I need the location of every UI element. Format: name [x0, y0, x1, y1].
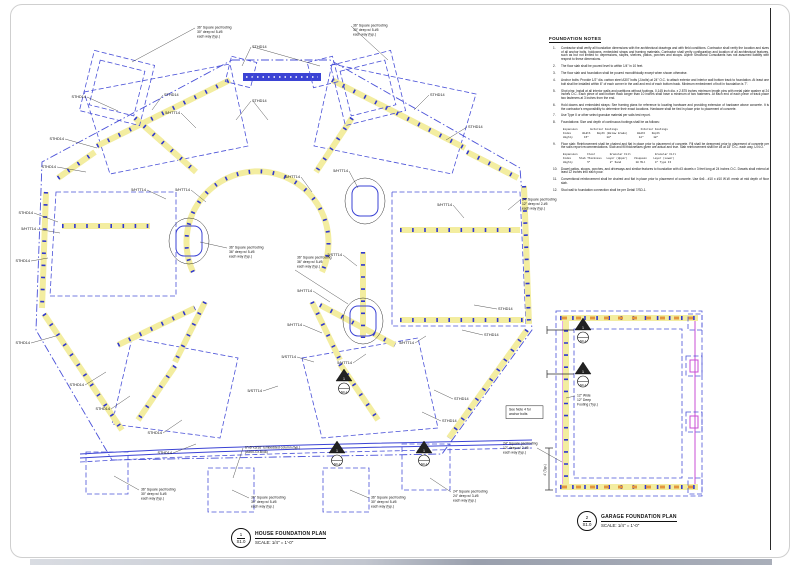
- plan-note-text: 30" deep w/ 5-#5: [197, 30, 223, 34]
- plan-note: 36" Square pad footing30" deep w/ 5-#5ea…: [350, 490, 406, 508]
- plan-title: HOUSE FOUNDATION PLAN: [255, 531, 326, 539]
- plan-note-text: each way (typ.): [371, 504, 394, 508]
- leader-line: [132, 28, 195, 62]
- pad-footing: [89, 60, 145, 116]
- plan-note-text: 24" Square pad footing: [522, 198, 557, 202]
- leader-line: [422, 412, 441, 421]
- pilaster: [686, 412, 702, 432]
- note-text: The floor slab shall be poured level to …: [561, 65, 769, 69]
- pad-footing: [208, 468, 254, 512]
- plan-note-text: 12" deep w/ 2-#5: [503, 446, 529, 450]
- footing-wall: [58, 152, 95, 178]
- footing-schedule-table: Expansion Exterior Footings Interior Foo…: [563, 128, 769, 139]
- note-text: Floor slab: Reinforcement shall be chair…: [561, 143, 769, 150]
- holdown-callout: 5/HTT14: [337, 361, 352, 365]
- leader-line: [232, 490, 249, 498]
- foundation-note: 5.Shot pins: Install at all interior wal…: [553, 90, 769, 101]
- revision-cloud: [345, 178, 385, 224]
- plan-note-text: 24" Square pad footing: [453, 490, 488, 494]
- plan-scale: SCALE: 1/4" = 1'-0": [601, 523, 677, 528]
- porch-edge: [80, 440, 532, 454]
- garage-dim-label: 4' (Typ.): [543, 464, 547, 475]
- notes-title: FOUNDATION NOTES: [549, 36, 601, 43]
- plan-note-text: 12" Deep: [577, 398, 591, 402]
- plan-note-text: 36" Square pad footing: [229, 246, 264, 250]
- holdown-callout: STHD14: [18, 211, 33, 215]
- holdown-callout: 5/HTT14: [297, 289, 312, 293]
- house-plan: [36, 50, 532, 512]
- plan-note-text: each way (typ.): [141, 496, 164, 500]
- holdown-callout: 5/HTT14: [399, 341, 414, 345]
- plan-note-text: 36" deep w/ 5-#5: [229, 250, 255, 254]
- sheet-bottom-edge: [30, 559, 772, 565]
- leader-line: [295, 270, 348, 304]
- foundation-note: 1.Contractor shall verify all foundation…: [553, 47, 769, 62]
- leader-line: [147, 190, 166, 199]
- holdown-callout: 5/HTT14: [131, 188, 146, 192]
- shear-wall-number: 1: [582, 326, 584, 330]
- leader-line: [353, 354, 366, 363]
- plan-note-text: 36" Square pad footing: [251, 496, 286, 500]
- detail-bubble: 1 S1.0: [231, 528, 251, 548]
- leader-line: [200, 242, 227, 248]
- holdown-callout: STHD14: [468, 125, 483, 129]
- note-number: 9.: [553, 143, 561, 150]
- foundation-notes-panel: FOUNDATION NOTES 1.Contractor shall veri…: [549, 27, 769, 196]
- holdown-callout: STHD14: [95, 407, 110, 411]
- pad-footing: [307, 56, 339, 88]
- shear-wall-number: 1: [336, 449, 338, 453]
- plan-note: 36" Square pad footing36" deep w/ 5-#5ea…: [200, 242, 264, 258]
- leader-line: [242, 47, 251, 66]
- note-text: Dowel patios, stoops, porches, and drive…: [561, 168, 769, 175]
- plan-note: 24" Square pad footing12" deep w/ 2-#5ea…: [503, 442, 562, 462]
- holdown-callout: 5/HTT14: [165, 111, 180, 115]
- plan-note-text: each way (typ.): [503, 450, 526, 454]
- holdown-callout: 5/HTT14: [437, 203, 452, 207]
- pilaster-pad: [690, 360, 698, 372]
- plan-note-text: 30" deep w/ 5-#5: [251, 500, 277, 504]
- holdown-callout: STHD14: [484, 333, 499, 337]
- holdown-callout: 5/HTT14: [285, 175, 300, 179]
- foundation-note: 3.The floor slab and foundation shall be…: [553, 72, 769, 76]
- leader-line: [163, 420, 182, 433]
- plan-note-text: 12" deep w/ 2-#5: [522, 202, 548, 206]
- leader-line: [181, 113, 196, 128]
- plan-note-text: 30" deep w/ 5-#5: [371, 500, 397, 504]
- holdown-callouts: STHD14STHD14STHD14STHD145/HTT14STHD14STH…: [15, 45, 512, 455]
- note-text: Hold downs and embedded straps: See fram…: [561, 104, 769, 111]
- leader-line: [87, 97, 118, 111]
- plan-note-text: (A500-Gr.B/46): [245, 450, 268, 454]
- room-outline: [50, 192, 176, 296]
- holdown-callout: STHD14: [71, 95, 86, 99]
- plan-note-text: each way (typ.): [353, 32, 376, 36]
- note-number: 8.: [553, 121, 561, 125]
- footing-wall: [42, 192, 46, 308]
- detail-reference: SD-1: [580, 339, 587, 343]
- leader-line: [253, 101, 268, 120]
- foundation-note: 9.Floor slab: Reinforcement shall be cha…: [553, 143, 769, 150]
- holdown-callout: STHD14: [164, 93, 179, 97]
- leader-line: [462, 330, 483, 335]
- foundation-note: 12.Stud wall to foundation connection sh…: [553, 189, 769, 193]
- plan-title: GARAGE FOUNDATION PLAN: [601, 514, 677, 522]
- sheet-margin-line: [770, 8, 771, 550]
- leader-line: [37, 229, 60, 233]
- note-number: 4.: [553, 79, 561, 86]
- footing-wall: [316, 118, 352, 172]
- note-number: 12.: [553, 189, 561, 193]
- pad-footing: [86, 452, 128, 494]
- plan-note-text: 24" deep w/ 3-#5: [453, 494, 479, 498]
- leader-line: [508, 200, 520, 210]
- foundation-note: 8.Foundations: Size and depth of continu…: [553, 121, 769, 125]
- note-number: 1.: [553, 47, 561, 62]
- plan-note-text: each way (typ.): [297, 264, 320, 268]
- shear-wall-symbol: 1SD-1: [575, 362, 591, 387]
- garage-plan-titleblock: 2 S1.0 GARAGE FOUNDATION PLAN SCALE: 1/4…: [577, 511, 677, 531]
- note-text: Contractor shall verify all foundation d…: [561, 47, 769, 62]
- foundation-note: 4.Anchor bolts: Provide 1/2" dia. carbon…: [553, 79, 769, 86]
- detail-reference: SD-1: [580, 383, 587, 387]
- leader-line: [350, 490, 369, 498]
- holdown-callout: 5/HTT14: [21, 227, 36, 231]
- pilaster: [686, 356, 702, 376]
- holdown-callout: STHD14: [15, 341, 30, 345]
- leader-line: [434, 390, 453, 399]
- leader-line: [233, 448, 243, 478]
- holdown-callout: 5/STT14: [327, 253, 342, 257]
- plan-note-text: each way (typ.): [251, 504, 274, 508]
- footing-wall: [138, 366, 175, 420]
- detail-bubble: 2 S1.0: [577, 511, 597, 531]
- grade-beam: [243, 73, 321, 81]
- room-outline: [302, 338, 438, 438]
- note-text: Stud wall to foundation connection shall…: [561, 189, 769, 193]
- shear-wall-number: 1: [423, 449, 425, 453]
- plan-note: 36" Square pad footing30" deep w/ 5-#5ea…: [232, 490, 286, 508]
- detail-reference: SD-1: [341, 390, 348, 394]
- holdown-callout: 5/HTT14: [333, 169, 348, 173]
- garage-plan: 4' (Typ.): [543, 311, 702, 496]
- footing-wall: [449, 330, 527, 438]
- leader-line: [453, 205, 464, 218]
- plan-note-text: anchor bolts: [509, 412, 528, 416]
- plan-note-text: 36" Square pad footing: [197, 26, 232, 30]
- plan-note-text: Footing (Typ.): [577, 402, 598, 406]
- holdown-callout: STHD14: [498, 307, 513, 311]
- holdown-callout: STHD14: [252, 45, 267, 49]
- plan-note-text: each way (typ.): [229, 254, 252, 258]
- leader-line: [537, 448, 562, 462]
- note-number: 7.: [553, 114, 561, 118]
- shear-wall-symbol: 1SD-1: [416, 441, 432, 466]
- plan-note: See Note 4 foranchor bolts: [506, 406, 543, 419]
- detail-sheet: S1.0: [582, 522, 591, 527]
- note-number: 10.: [553, 168, 561, 175]
- foundation-note: 7.Use Type II or other select granular m…: [553, 114, 769, 118]
- footing-wall: [97, 80, 230, 146]
- column-pad: [352, 186, 378, 216]
- plan-note-text: 36" Square pad footing: [353, 24, 388, 28]
- shear-wall-number: 1: [343, 377, 345, 381]
- plan-note-text: each way (typ.): [522, 206, 545, 210]
- foundation-note: 2.The floor slab shall be poured level t…: [553, 65, 769, 69]
- note-number: 2.: [553, 65, 561, 69]
- note-text: Shot pins: Install at all interior walls…: [561, 90, 769, 101]
- footing-schedule-table: Expansion Floor Granular Fill Granular F…: [563, 153, 769, 164]
- pad-footing: [323, 468, 369, 512]
- detail-sheet: S1.0: [236, 539, 245, 544]
- pilaster-pad: [690, 416, 698, 428]
- leader-line: [303, 325, 322, 333]
- leader-line: [236, 101, 251, 120]
- holdown-callout: 5/STT14: [247, 389, 262, 393]
- note-text: The floor slab and foundation shall be p…: [561, 72, 769, 76]
- footing-wall: [44, 314, 122, 430]
- footing-wall: [332, 80, 465, 148]
- leader-line: [313, 291, 330, 302]
- plan-note: 36" Square pad footing30" deep w/ 5-#5ea…: [132, 26, 232, 62]
- plan-note-text: each way (typ.): [453, 498, 476, 502]
- note-number: 6.: [553, 104, 561, 111]
- holdown-callout: 5/STT14: [281, 355, 296, 359]
- foundation-note: 6.Hold downs and embedded straps: See fr…: [553, 104, 769, 111]
- holdown-callout: STHD14: [442, 419, 457, 423]
- holdown-callout: STHD14: [147, 431, 162, 435]
- plan-note-text: See Note 4 for: [509, 408, 532, 412]
- plan-note-text: 30" deep w/ 5-#5: [353, 28, 379, 32]
- leader-line: [474, 305, 497, 309]
- plan-note-text: each way (typ.): [197, 34, 220, 38]
- plan-note: 12" Wide12" DeepFooting (Typ.): [566, 394, 598, 407]
- note-text: Use Type II or other select granular mat…: [561, 114, 769, 118]
- leader-line: [415, 336, 426, 343]
- shear-wall-symbol: 1SD-1: [575, 318, 591, 343]
- leader-line: [414, 95, 429, 110]
- holdown-callout: STHD14: [69, 383, 84, 387]
- leader-line: [253, 47, 320, 66]
- holdown-callout: 5/HTT14: [287, 323, 302, 327]
- plan-note: 36" Square pad footing30" deep w/ 5-#5ea…: [351, 24, 388, 60]
- note-number: 3.: [553, 72, 561, 76]
- plan-note-text: 36" Square pad footing: [371, 496, 406, 500]
- note-text: Conventional reinforcement shall be chai…: [561, 178, 769, 185]
- holdown-callout: STHD14: [430, 93, 445, 97]
- plan-note-text: 12" Wide: [577, 394, 591, 398]
- foundation-note: 10.Dowel patios, stoops, porches, and dr…: [553, 168, 769, 175]
- room-outline: [112, 338, 238, 438]
- detail-reference: SD-1: [421, 462, 428, 466]
- holdown-callout: STHD14: [41, 165, 56, 169]
- leader-line: [111, 396, 130, 409]
- plan-note-text: 6"x6"x3/16" Embedded column (typ.): [245, 446, 300, 450]
- plan-note-text: 36" Square pad footing: [141, 488, 176, 492]
- plan-note-text: 36" deep w/ 5-#5: [297, 260, 323, 264]
- shear-wall-number: 1: [582, 370, 584, 374]
- holdown-callout: 5/HTT14: [175, 188, 190, 192]
- house-plan-titleblock: 1 S1.0 HOUSE FOUNDATION PLAN SCALE: 1/4"…: [231, 528, 326, 548]
- holdown-callout: STHD14: [15, 259, 30, 263]
- note-text: Foundations: Size and depth of continuou…: [561, 121, 769, 125]
- plan-note-text: 30" deep w/ 5-#5: [141, 492, 167, 496]
- leader-line: [343, 255, 357, 266]
- note-text: Anchor bolts: Provide 1/2" dia. carbon s…: [561, 79, 769, 86]
- plan-scale: SCALE: 1/4" = 1'-0": [255, 540, 326, 545]
- note-number: 11.: [553, 178, 561, 185]
- holdown-callout: STHD14: [49, 137, 64, 141]
- plan-note: 24" Square pad footing12" deep w/ 2-#5ea…: [508, 198, 557, 211]
- holdown-callout: STHD14: [454, 397, 469, 401]
- note-number: 5.: [553, 90, 561, 101]
- leader-line: [263, 386, 278, 391]
- foundation-note: 11.Conventional reinforcement shall be c…: [553, 178, 769, 185]
- plan-note: 36" Square pad footing30" deep w/ 5-#5ea…: [114, 476, 176, 500]
- leader-line: [114, 476, 139, 490]
- leader-line: [430, 478, 451, 492]
- drawing-sheet: 4' (Typ.) 36" Square pad footing30" deep…: [0, 0, 800, 574]
- holdown-callout: STHD14: [157, 451, 172, 455]
- notes-list: 1.Contractor shall verify all foundation…: [549, 47, 769, 193]
- detail-reference: SD-1: [334, 462, 341, 466]
- plan-note-text: 24" Square pad footing: [503, 442, 538, 446]
